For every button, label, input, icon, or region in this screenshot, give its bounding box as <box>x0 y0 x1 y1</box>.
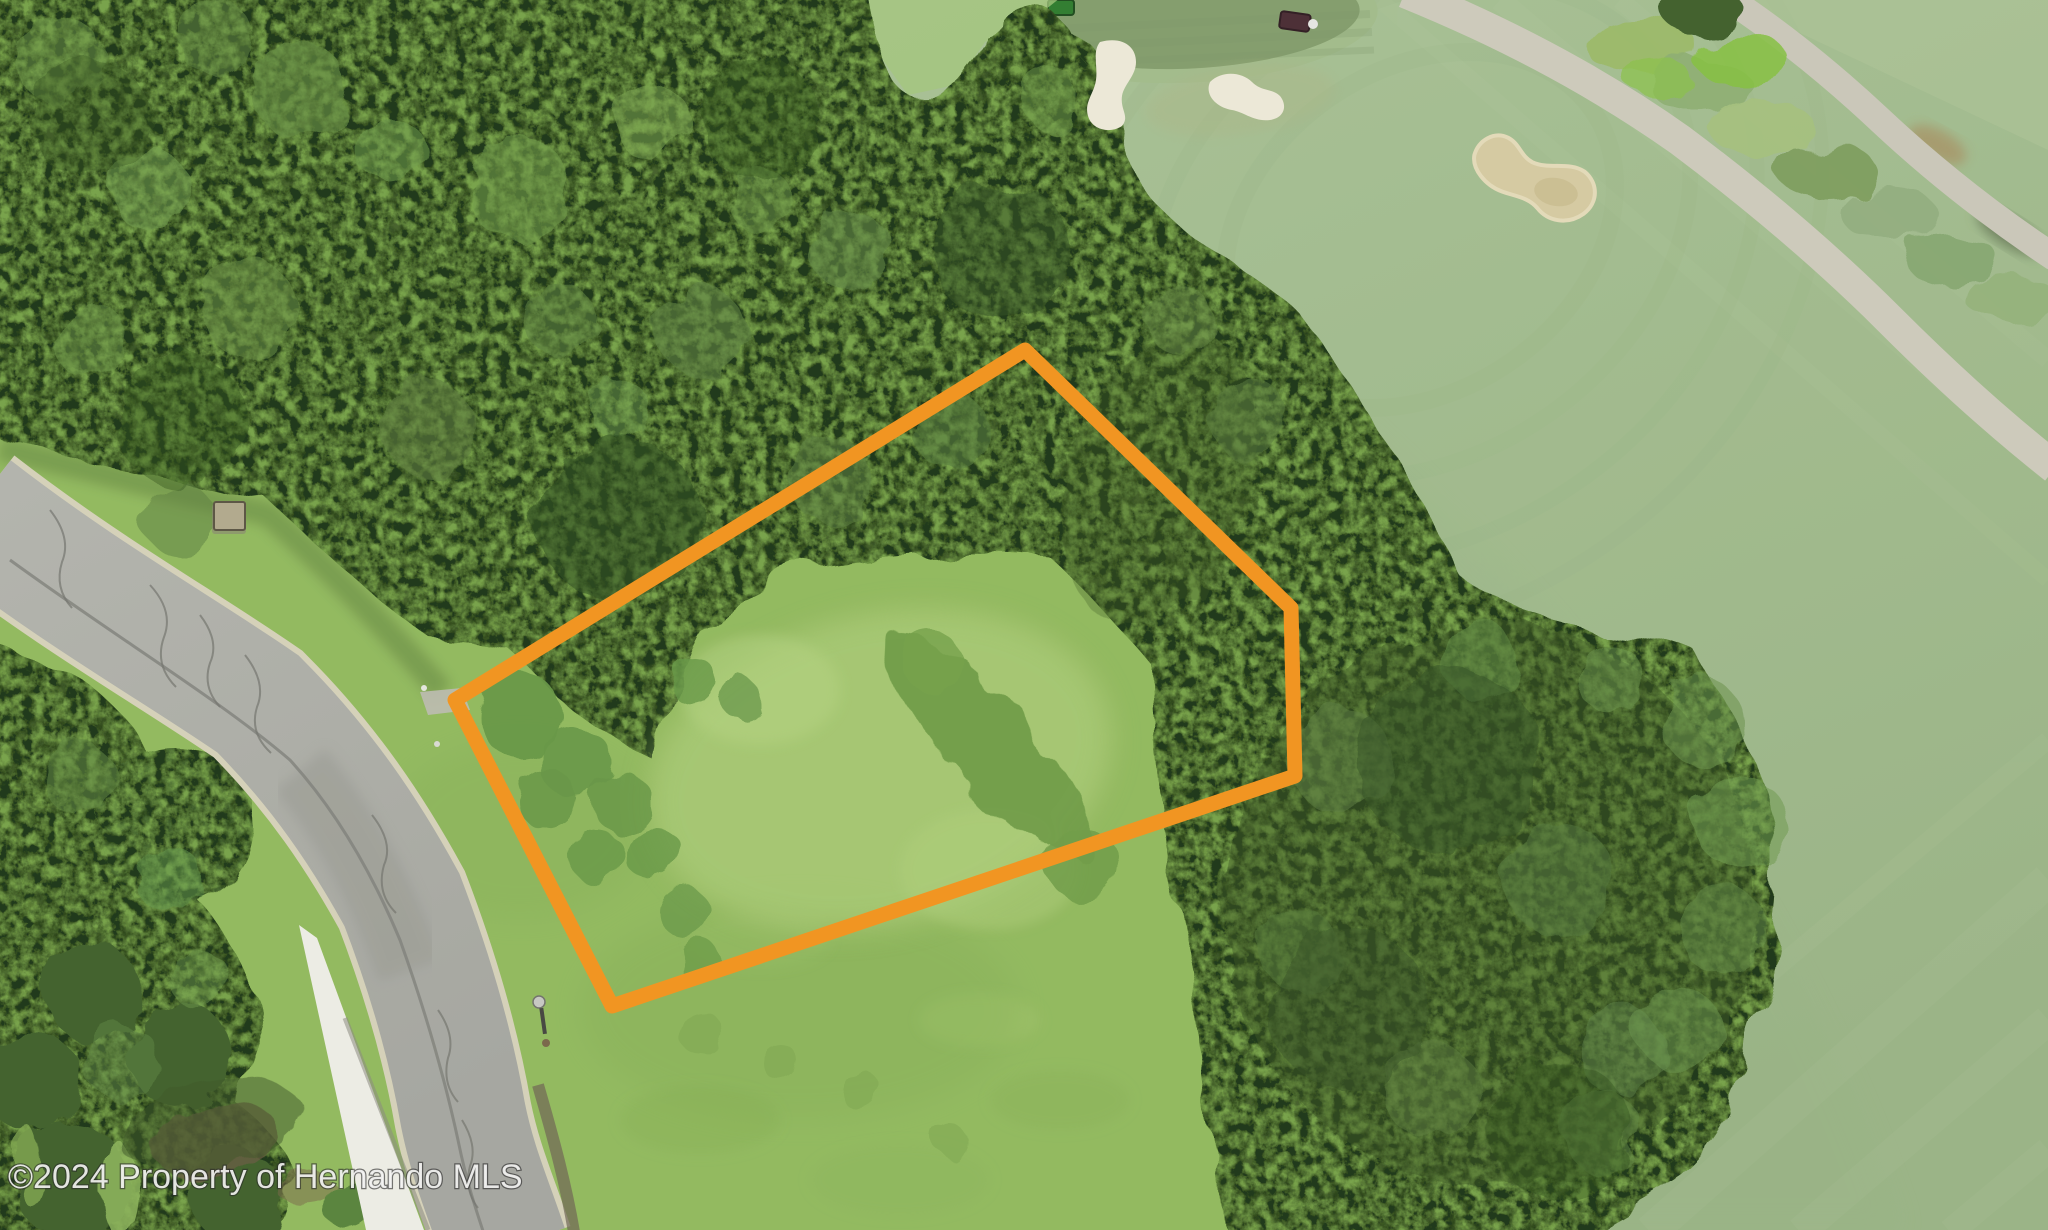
svg-text:©2024 Property of Hernando MLS: ©2024 Property of Hernando MLS <box>8 1158 523 1196</box>
